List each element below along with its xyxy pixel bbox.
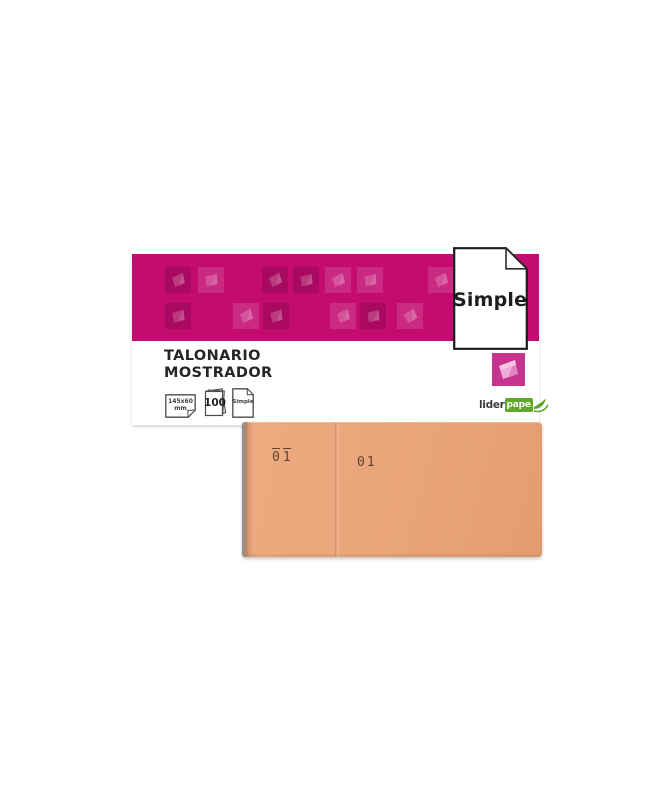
pattern-square: [262, 267, 288, 293]
product-title-line1: TALONARIO: [164, 348, 273, 365]
paper-motif-glyph: [164, 302, 192, 330]
pattern-square: [198, 267, 224, 293]
pattern-square: [397, 303, 423, 329]
pattern-square: [233, 303, 259, 329]
pattern-square: [293, 267, 319, 293]
paper-motif-glyph: [232, 302, 261, 331]
brand-box-text: pape: [505, 398, 533, 412]
pattern-square: [165, 303, 191, 329]
sheet-count-icon: 100: [202, 387, 228, 418]
copy-type-icon: Simple: [232, 388, 254, 418]
copy-type-value: Simple: [232, 400, 254, 406]
sheet-count-value: 100: [202, 398, 228, 409]
pattern-square: [357, 267, 383, 293]
brand-prefix: lider: [479, 400, 505, 411]
size-spec-icon: 145x60 mm: [165, 394, 196, 418]
paper-motif-icon: [492, 353, 525, 386]
paper-motif-glyph: [262, 302, 289, 329]
paper-motif-glyph: [355, 265, 384, 294]
ticket-number: 01: [357, 455, 377, 470]
paper-motif-glyph: [260, 265, 289, 294]
brand-logo: lider pape: [479, 397, 549, 413]
paper-motif-glyph: [329, 302, 357, 330]
paper-motif-glyph: [164, 266, 192, 294]
product-title-line2: MOSTRADOR: [164, 365, 273, 382]
book-spine: [242, 422, 254, 557]
receipt-book: 01 01: [242, 422, 542, 557]
pattern-square: [428, 267, 454, 293]
paper-motif-glyph: [427, 266, 456, 295]
stub-digit: 0: [272, 448, 280, 464]
category-icon: [492, 353, 525, 386]
product-title: TALONARIO MOSTRADOR: [164, 348, 273, 381]
paper-motif-glyph: [292, 266, 320, 294]
pattern-square: [165, 267, 191, 293]
variant-flag-label: Simple: [453, 289, 525, 311]
pattern-square: [360, 303, 386, 329]
paper-motif-glyph: [197, 266, 226, 295]
variant-flag-card: Simple: [453, 247, 528, 350]
paper-motif-glyph: [359, 302, 388, 331]
stub-digit: 1: [283, 448, 291, 464]
pattern-square: [263, 303, 289, 329]
paper-motif-glyph: [394, 300, 426, 332]
size-spec-unit: mm: [165, 406, 196, 412]
pattern-square: [330, 303, 356, 329]
paper-motif-glyph: [324, 266, 352, 294]
perforation-line: [335, 422, 339, 557]
pattern-square: [325, 267, 351, 293]
stub-number: 01: [272, 448, 294, 465]
leaf-icon: [532, 397, 549, 414]
